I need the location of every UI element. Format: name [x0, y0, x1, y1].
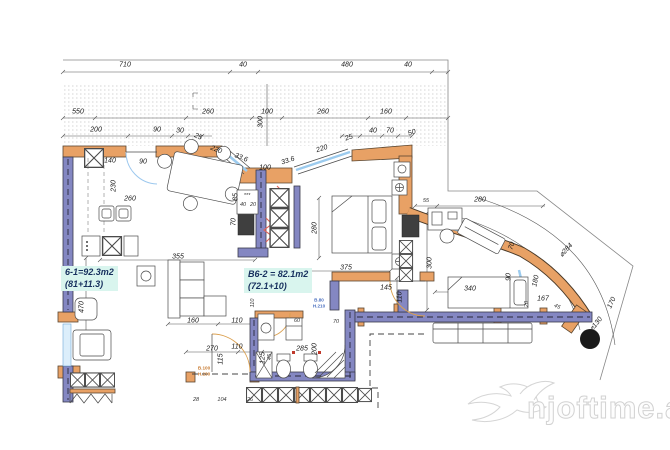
terrace-outline: [370, 334, 424, 408]
room-area-value: B6-2 = 82.1m2: [248, 269, 308, 281]
dimension-label: 90: [139, 159, 147, 166]
dimension-label: 90: [153, 127, 161, 134]
dimension-label: 340: [464, 286, 476, 293]
dimension-label: 375: [340, 265, 352, 272]
dimension-label: 110: [250, 299, 256, 308]
door-size-tag: B.100 H.230: [198, 365, 210, 376]
dimension-label: 260: [202, 109, 214, 116]
floor-plan-drawing: njoftime.al: [0, 0, 670, 450]
dimension-label: 40: [404, 62, 412, 69]
dimension-label: 300: [427, 257, 434, 269]
dimension-label: 200: [90, 127, 102, 134]
dimension-label: 110: [231, 344, 242, 351]
column: [580, 329, 600, 349]
dimension-label: 145: [380, 285, 392, 292]
dimension-label: 60: [294, 318, 300, 324]
dimension-label: 28: [193, 397, 199, 403]
dimension-label: 125: [260, 352, 267, 364]
dimension-label: 300: [258, 116, 265, 128]
dimension-label: 280: [474, 197, 486, 204]
exterior-walls: [58, 145, 588, 382]
dimension-label: 110: [231, 318, 242, 325]
dimension-label: 160: [187, 318, 199, 325]
dimension-label: 355: [172, 254, 184, 261]
dimension-label: 480: [341, 62, 353, 69]
room-area-breakdown: (81+11.3): [65, 279, 114, 291]
room-area-value: 6-1=92.3m2: [65, 267, 114, 279]
dimension-label: 70: [231, 218, 238, 226]
dimension-label: 100: [259, 165, 271, 172]
dimension-label: 280: [312, 222, 319, 234]
watermark: njoftime.al: [468, 381, 670, 425]
dimension-label: 110: [397, 291, 404, 302]
room-area-label-1: 6-1=92.3m2 (81+11.3): [61, 266, 118, 291]
dimension-label: 104: [217, 397, 226, 403]
floor-plan-canvas: njoftime.al 6-1=92.3m2 (81+11.3) B6-2 = …: [0, 0, 670, 450]
dimension-label: 90: [506, 273, 513, 281]
dimension-label: 285: [296, 346, 308, 353]
dimension-label: 230: [111, 180, 118, 192]
dimension-label: 550: [72, 109, 84, 116]
dimension-label: 140: [104, 158, 116, 165]
bedroom-1: [332, 162, 410, 269]
dimension-label: 20: [524, 301, 530, 307]
dimension-label: 55: [423, 198, 429, 204]
dimension-label: 70: [333, 319, 339, 325]
door-size-tag: B.80 H.210: [313, 297, 325, 308]
dimension-label: 26: [247, 397, 253, 403]
dimension-label: 160: [380, 109, 392, 116]
dimension-label: 40: [369, 128, 377, 135]
dimension-label: 40: [239, 62, 247, 69]
dimension-label: 70: [386, 128, 394, 135]
dimension-label: 200: [312, 343, 319, 355]
dimension-label: 40: [240, 202, 246, 208]
dimension-label: 20: [250, 202, 256, 208]
dimension-label: 30: [176, 128, 184, 135]
dimension-label: 45: [267, 354, 273, 360]
dimension-label: 85: [233, 193, 240, 201]
dimension-label: 260: [124, 196, 136, 203]
dimension-label: 167: [537, 296, 549, 303]
dimension-label: 260: [317, 109, 329, 116]
dimension-label: 115: [218, 353, 225, 364]
dimension-label: 270: [206, 346, 218, 353]
room-area-label-2: B6-2 = 82.1m2 (72.1+10): [244, 268, 312, 293]
dimension-label: 710: [119, 62, 131, 69]
dimension-label: 100: [261, 109, 273, 116]
dimension-label: ***: [244, 193, 250, 199]
watermark-text: njoftime.al: [527, 390, 670, 425]
dimension-label: 470: [79, 301, 86, 313]
room-area-breakdown: (72.1+10): [248, 281, 308, 293]
